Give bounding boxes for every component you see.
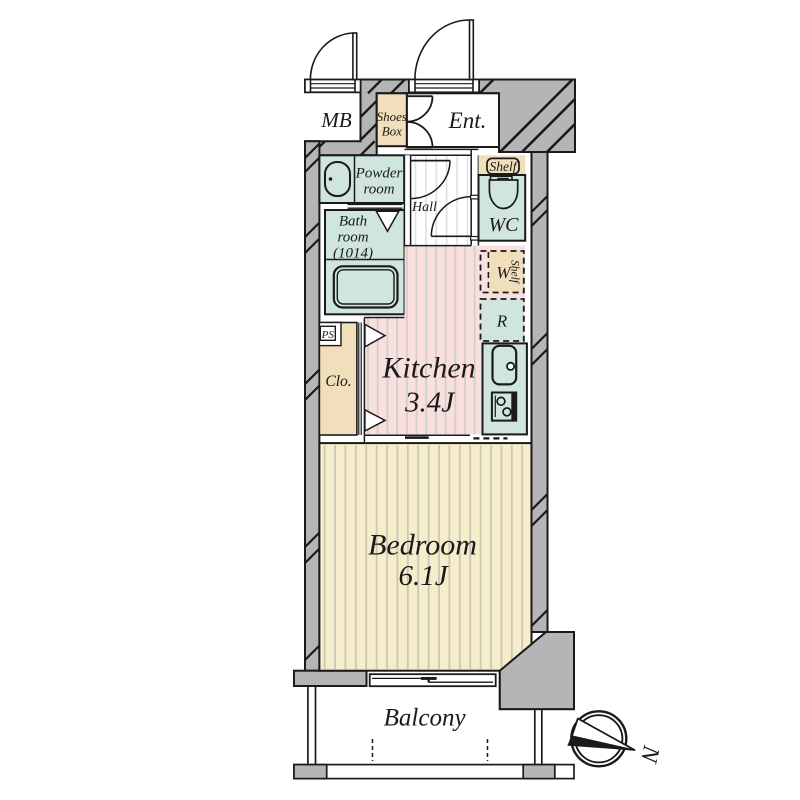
svg-text:room: room xyxy=(363,182,394,198)
svg-text:Shoes: Shoes xyxy=(377,109,407,124)
svg-text:6.1J: 6.1J xyxy=(398,560,448,592)
svg-text:Box: Box xyxy=(382,124,402,139)
svg-text:MB: MB xyxy=(320,108,351,132)
svg-text:room: room xyxy=(337,230,368,246)
svg-text:PS: PS xyxy=(321,329,335,341)
svg-text:Kitchen: Kitchen xyxy=(381,351,475,384)
svg-text:(1014): (1014) xyxy=(333,246,373,262)
svg-text:Shelf: Shelf xyxy=(509,260,521,285)
svg-text:Powder: Powder xyxy=(355,166,403,182)
svg-text:WC: WC xyxy=(489,214,520,236)
svg-text:Bath: Bath xyxy=(339,214,367,230)
svg-text:Balcony: Balcony xyxy=(384,705,467,732)
svg-text:Clo.: Clo. xyxy=(325,373,351,390)
svg-text:3.4J: 3.4J xyxy=(404,387,455,419)
svg-text:Shelf: Shelf xyxy=(490,159,519,174)
svg-text:R: R xyxy=(496,312,508,331)
svg-text:Ent.: Ent. xyxy=(448,108,487,133)
svg-text:Hall: Hall xyxy=(411,200,437,215)
svg-text:Bedroom: Bedroom xyxy=(368,529,477,562)
